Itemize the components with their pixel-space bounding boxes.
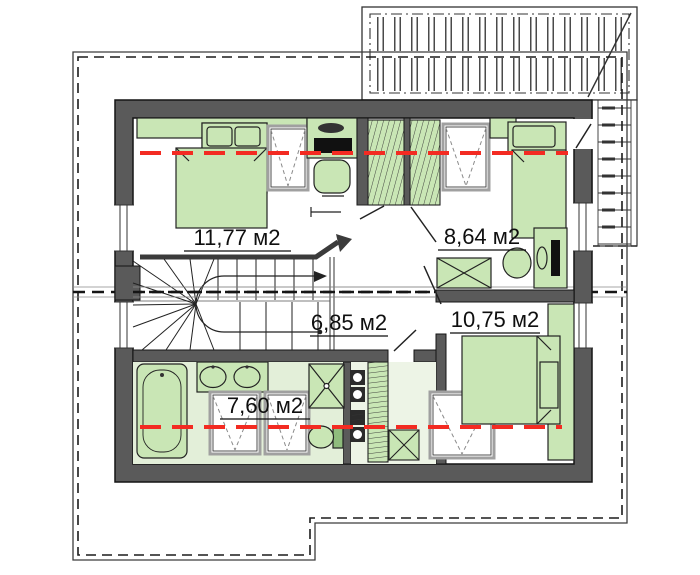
window-right-2 xyxy=(573,303,593,348)
stair-direction-arrow xyxy=(336,234,352,252)
closets-top xyxy=(357,120,440,205)
label-bedroom-bottom: 10,75 м2 xyxy=(451,307,540,332)
desk-2 xyxy=(534,228,567,288)
window-right-1 xyxy=(573,203,593,251)
terrace xyxy=(362,7,637,100)
skylight-window-2 xyxy=(443,124,489,190)
label-bedroom-right: 8,64 м2 xyxy=(444,224,520,249)
bathroom-top-wall-right xyxy=(414,350,436,362)
shower xyxy=(309,364,344,408)
double-bed-bottom xyxy=(462,336,560,424)
exterior-stairs xyxy=(592,100,637,246)
double-bed xyxy=(176,123,267,228)
door-bedroom-left xyxy=(360,206,384,219)
stair-treads-upper xyxy=(218,259,313,300)
label-hall: 6,85 м2 xyxy=(311,310,387,335)
door-bedroom-right xyxy=(411,207,436,242)
closet-wall-left xyxy=(357,118,368,205)
stair-walk-line xyxy=(196,276,320,332)
door-bathroom xyxy=(394,330,416,351)
single-bed xyxy=(508,122,566,238)
toilet xyxy=(309,426,344,448)
desk-chair-1 xyxy=(314,160,350,196)
bedroom-right-furniture xyxy=(437,118,567,288)
stair-winder-treads xyxy=(133,259,214,350)
floor-plan-svg: 11,77 м2 8,64 м2 6,85 м2 10,75 м2 7,60 м… xyxy=(0,0,700,575)
stair-walk-arrow xyxy=(314,271,327,282)
exterior-stairs-frame xyxy=(592,100,637,246)
stair-pillar xyxy=(115,266,140,300)
bathtub xyxy=(137,364,187,458)
window-left-1 xyxy=(114,205,134,251)
skylight-window-1 xyxy=(268,126,308,190)
label-bathroom: 7,60 м2 xyxy=(227,393,303,418)
window-left-2 xyxy=(114,302,134,348)
floor-plan-page: 11,77 м2 8,64 м2 6,85 м2 10,75 м2 7,60 м… xyxy=(0,0,700,575)
stair-treads-lower xyxy=(240,302,318,350)
mid-wall-right xyxy=(436,290,574,302)
dresser xyxy=(437,258,491,288)
label-bedroom-left: 11,77 м2 xyxy=(194,225,281,250)
terrace-decking-lower xyxy=(374,58,625,91)
closet-wall-mid xyxy=(404,118,410,205)
bathroom-top-wall xyxy=(133,350,388,362)
double-sink xyxy=(197,362,268,392)
terrace-door xyxy=(573,119,593,149)
desk-chair-2 xyxy=(503,248,531,278)
storage-cabinet-x xyxy=(389,430,419,460)
terrace-decking-upper xyxy=(374,17,625,51)
